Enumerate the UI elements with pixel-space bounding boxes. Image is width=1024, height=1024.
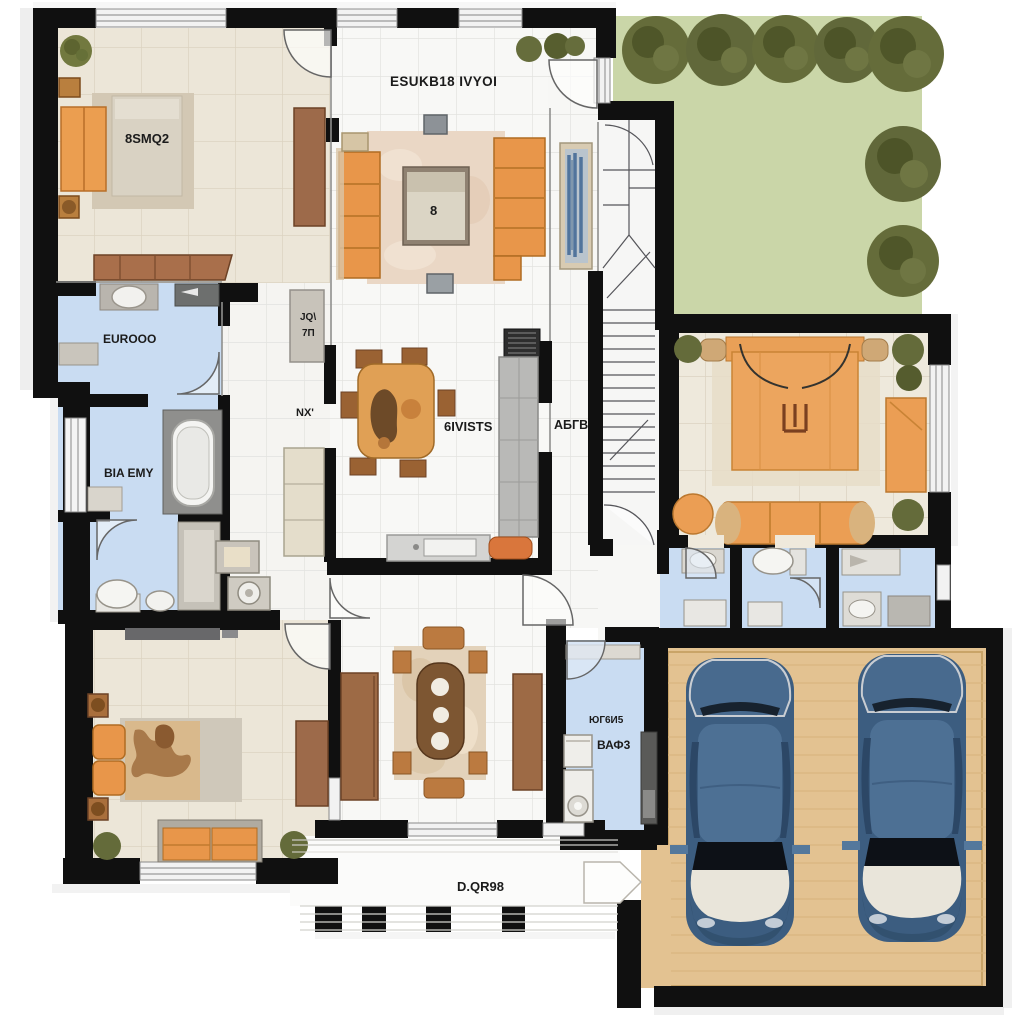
svg-text:7П: 7П <box>302 328 315 339</box>
svg-text:6IVISTS: 6IVISTS <box>444 419 493 434</box>
svg-text:ВАФ3: ВАФ3 <box>597 738 631 752</box>
svg-text:ЮГ6И5: ЮГ6И5 <box>589 715 624 726</box>
svg-text:ESUKB18 IVYOI: ESUKB18 IVYOI <box>390 74 497 89</box>
svg-text:АБГВ: АБГВ <box>554 418 588 432</box>
svg-text:BIA EMY: BIA EMY <box>104 466 154 480</box>
svg-text:JQ\: JQ\ <box>300 312 316 323</box>
svg-text:D.QR98: D.QR98 <box>457 879 504 894</box>
svg-text:8: 8 <box>430 203 437 218</box>
svg-text:8SMQ2: 8SMQ2 <box>125 131 169 146</box>
svg-text:NX': NX' <box>296 407 314 419</box>
svg-text:EUROOO: EUROOO <box>103 332 156 346</box>
